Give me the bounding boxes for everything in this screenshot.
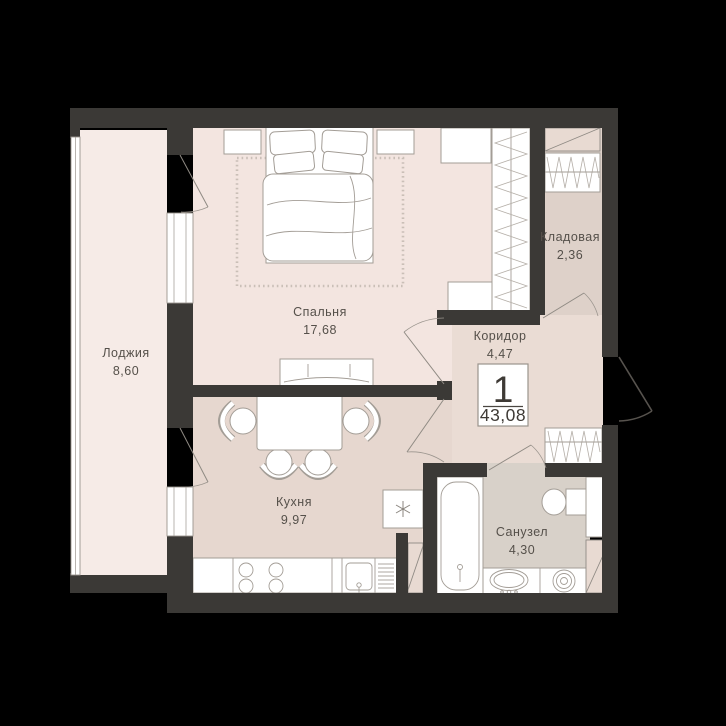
nightstand-right	[377, 130, 414, 154]
rooms-count: 1	[493, 369, 514, 410]
room-area-storage: 2,36	[557, 248, 583, 262]
wall-bathroom-top-right	[545, 463, 603, 477]
room-label-storage: Кладовая	[540, 230, 600, 244]
wall-loggia-partition-top	[167, 128, 193, 155]
blanket	[263, 174, 373, 261]
wall-right-upper	[602, 108, 618, 357]
wall-bathroom-left	[423, 463, 437, 593]
wall-left-top-stub	[70, 108, 80, 138]
room-label-corridor: Коридор	[474, 329, 527, 343]
room-area-corridor: 4,47	[487, 347, 513, 361]
room-label-kitchen: Кухня	[276, 495, 312, 509]
wall-loggia-partition-bottom	[167, 536, 193, 593]
room-label-bathroom: Санузел	[496, 525, 548, 539]
wall-bedroom-kitchen	[193, 385, 452, 397]
floor-plan-canvas: Спальня 17,68 Лоджия 8,60 Кладовая 2,36 …	[0, 0, 726, 726]
corridor-closet	[545, 428, 602, 465]
wall-corridor-top	[437, 310, 540, 325]
dresser-top-right	[441, 128, 491, 163]
wall-bottom	[167, 593, 618, 613]
kitchen-counter	[193, 558, 397, 597]
bed	[263, 127, 373, 263]
chair-seat	[343, 408, 369, 434]
chair-seat	[305, 449, 331, 475]
nightstand-left	[224, 130, 261, 154]
bathtub	[437, 477, 483, 595]
chair-seat	[266, 449, 292, 475]
room-label-loggia: Лоджия	[102, 346, 149, 360]
toilet-bowl	[542, 489, 566, 515]
room-area-bedroom: 17,68	[303, 323, 337, 337]
floor-plan: Спальня 17,68 Лоджия 8,60 Кладовая 2,36 …	[0, 0, 726, 726]
window-loggia-bedroom	[167, 213, 193, 303]
total-area: 43,08	[480, 405, 526, 425]
entrance-door-arc	[619, 411, 652, 421]
fridge	[383, 490, 423, 528]
wall-cap-corridor	[437, 381, 452, 400]
pillow	[273, 151, 315, 174]
wall-storage-left	[530, 128, 545, 315]
chair-seat	[230, 408, 256, 434]
bath-counter	[483, 568, 587, 595]
drying-rack	[378, 564, 394, 588]
wall-stub-vent	[396, 533, 408, 593]
room-label-bedroom: Спальня	[293, 305, 347, 319]
wall-loggia-partition-mid	[167, 303, 193, 428]
room-area-bathroom: 4,30	[509, 543, 535, 557]
room-area-loggia: 8,60	[113, 364, 139, 378]
pillow	[322, 151, 364, 174]
entrance-door-leaf	[619, 357, 652, 411]
room-area-kitchen: 9,97	[281, 513, 307, 527]
summary-box: 1 43,08	[478, 364, 528, 426]
wall-right-lower	[602, 425, 618, 613]
wardrobe	[492, 128, 530, 313]
toilet-tank	[566, 489, 586, 515]
storage-builtins	[545, 128, 600, 192]
wall-bathroom-top-left	[423, 463, 487, 477]
door-entrance	[619, 357, 652, 421]
dining-table	[257, 394, 342, 450]
window-loggia-kitchen	[167, 487, 193, 536]
cabinet-bottom-right	[448, 282, 492, 313]
wall-top	[70, 108, 618, 128]
